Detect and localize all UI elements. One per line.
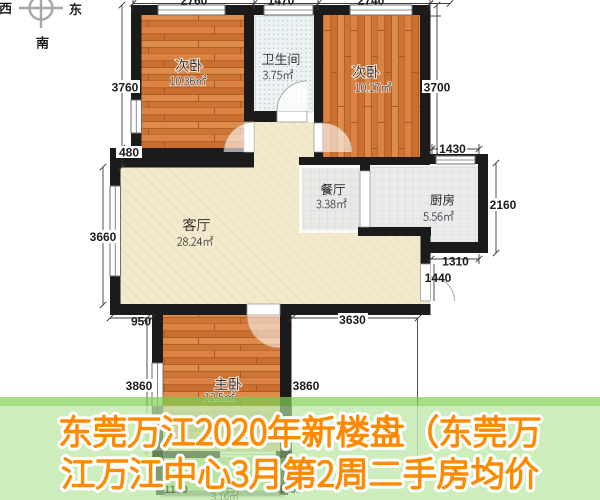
svg-text:2740: 2740 (358, 0, 385, 8)
svg-text:1310: 1310 (442, 255, 469, 269)
svg-text:3760: 3760 (112, 81, 139, 95)
svg-text:3700: 3700 (424, 81, 451, 95)
svg-text:3630: 3630 (339, 313, 366, 327)
svg-text:480: 480 (119, 146, 139, 160)
svg-text:1430: 1430 (439, 142, 466, 156)
svg-text:3860: 3860 (126, 379, 153, 393)
svg-text:1440: 1440 (425, 271, 452, 285)
svg-text:2160: 2160 (490, 198, 517, 212)
svg-text:2760: 2760 (181, 0, 208, 8)
svg-text:3660: 3660 (90, 230, 117, 244)
svg-text:1470: 1470 (268, 0, 295, 8)
svg-text:3860: 3860 (293, 379, 320, 393)
